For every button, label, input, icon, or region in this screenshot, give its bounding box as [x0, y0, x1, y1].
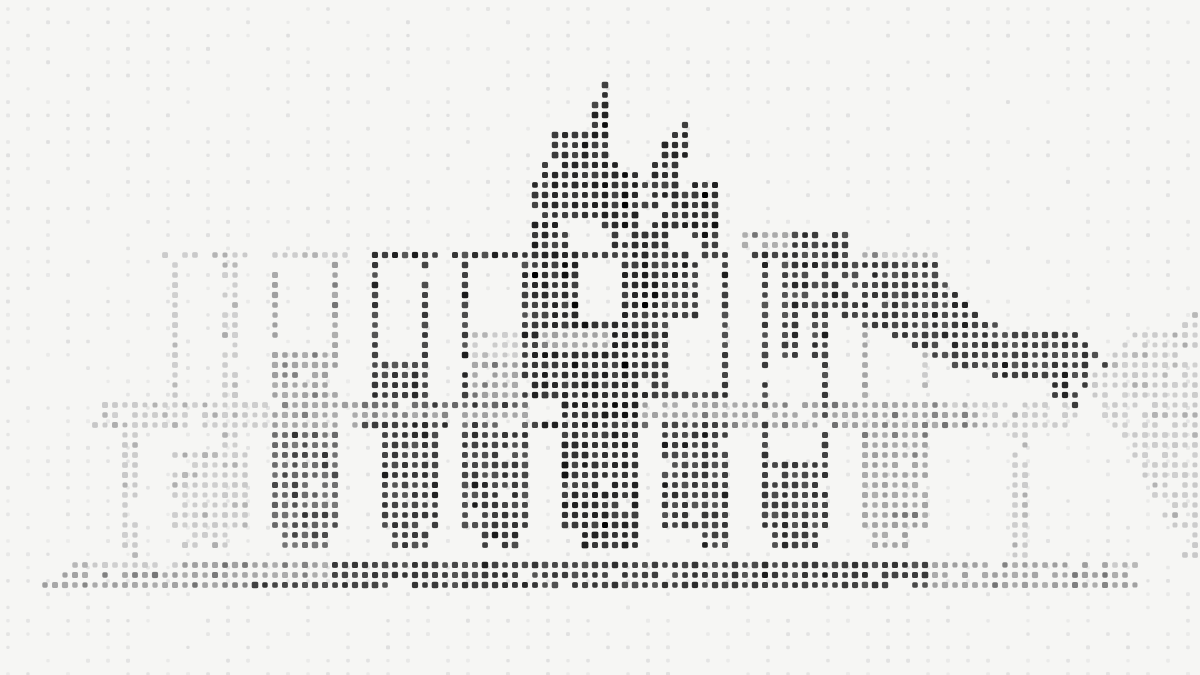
dot-matrix-artwork [0, 0, 1200, 675]
building-dot-art [0, 0, 1200, 675]
